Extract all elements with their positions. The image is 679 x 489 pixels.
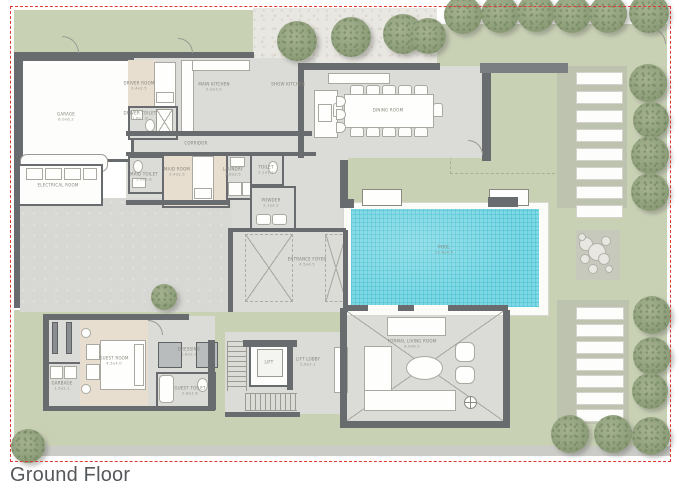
- stair-flight-lower: [245, 393, 297, 411]
- wall-dining-top: [298, 63, 440, 70]
- dining-chair: [366, 85, 380, 95]
- wall-foyer-right: [343, 230, 348, 312]
- tree: [151, 284, 177, 310]
- garden-bench-wall: [480, 63, 568, 73]
- dining-chair: [414, 85, 428, 95]
- wall-left-upper: [14, 52, 20, 165]
- wall-living-right: [503, 310, 510, 428]
- powder-sink-1: [256, 214, 271, 225]
- toilet-wc: [268, 161, 278, 174]
- garage-room: [20, 58, 134, 162]
- stepping-stone: [576, 72, 623, 85]
- wall-foyer-left: [228, 230, 233, 312]
- wall-living-bottom: [340, 421, 510, 428]
- electrical-unit-1: [26, 168, 43, 180]
- maid-bed-pillow: [194, 188, 212, 199]
- tree: [633, 102, 669, 138]
- garbage-bin-1: [50, 366, 63, 379]
- sun-lounger-1: [362, 189, 402, 206]
- stepping-stone: [576, 324, 624, 337]
- guest-tub: [159, 375, 174, 403]
- dining-chair: [398, 127, 412, 137]
- garbage-bin-2: [64, 366, 77, 379]
- wall-left-mid: [14, 160, 20, 308]
- stepping-stone: [576, 307, 624, 320]
- stepping-stone: [576, 91, 623, 104]
- guest-wc: [197, 378, 208, 392]
- living-top-opening-1: [368, 305, 398, 311]
- tree: [629, 64, 667, 102]
- lawn-top-left: [14, 10, 255, 54]
- stepping-stone: [576, 110, 623, 123]
- guest-bed-pillows: [134, 344, 144, 386]
- dining-chair: [398, 85, 412, 95]
- boulder: [588, 264, 598, 274]
- stair-flight-upper: [227, 341, 247, 391]
- foyer-skylight-left: [245, 234, 293, 302]
- wardrobe-1: [158, 342, 182, 368]
- electrical-unit-3: [64, 168, 81, 180]
- boulder: [601, 236, 611, 246]
- dining-chair: [433, 103, 443, 117]
- dining-chair: [382, 127, 396, 137]
- kitchen-counter-left: [181, 60, 194, 134]
- tree: [331, 17, 371, 57]
- tree: [551, 415, 589, 453]
- lift-car: [257, 349, 283, 377]
- dining-table: [344, 94, 434, 128]
- wall-lift-right: [287, 342, 293, 390]
- stepping-stone: [576, 186, 623, 199]
- wall-midrooms-bottom: [126, 200, 230, 205]
- wall-top-left-block: [14, 52, 254, 58]
- living-armchair-1: [455, 342, 475, 362]
- stepping-stone: [576, 358, 624, 371]
- dining-chair: [382, 85, 396, 95]
- dining-chair: [350, 85, 364, 95]
- wall-foyer-top: [228, 228, 346, 232]
- wall-corridor-top: [126, 131, 312, 136]
- wall-deck-stub-right: [488, 197, 518, 207]
- stepping-stone: [576, 341, 624, 354]
- toilet-room: [250, 154, 284, 186]
- stepping-stone: [576, 205, 623, 218]
- driver-sink: [131, 110, 143, 120]
- living-top-opening-2: [414, 305, 448, 311]
- driver-bed-pillow: [156, 92, 174, 103]
- tree: [633, 296, 671, 334]
- tree: [633, 337, 671, 375]
- maid-wc: [133, 160, 143, 173]
- dining-chair: [414, 127, 428, 137]
- tree: [632, 373, 668, 409]
- tree: [11, 429, 45, 463]
- living-sofa-l-horizontal: [364, 390, 456, 411]
- living-coffee-table: [406, 356, 443, 380]
- island-sink: [318, 104, 332, 122]
- guest-speaker-2: [81, 384, 91, 394]
- boulder: [580, 254, 590, 264]
- bike-2: [66, 322, 72, 354]
- powder-sink-2: [272, 214, 287, 225]
- dining-sideboard: [328, 73, 390, 84]
- living-armchair-2: [455, 366, 475, 384]
- dining-chair: [350, 127, 364, 137]
- wall-guest-left: [43, 314, 49, 410]
- tree: [631, 173, 669, 211]
- dining-chair: [366, 127, 380, 137]
- guest-speaker-1: [81, 328, 91, 338]
- tree: [632, 417, 670, 455]
- courtyard-terrace: [20, 198, 232, 312]
- boulder: [605, 265, 613, 273]
- living-sofa-top: [387, 317, 446, 336]
- wall-guest-bottom: [43, 406, 215, 411]
- maid-sink: [132, 178, 146, 188]
- boulder: [598, 253, 610, 265]
- kitchen-counter-top: [192, 60, 250, 71]
- pool-water: [351, 209, 539, 307]
- stepping-stone: [576, 129, 623, 142]
- tree: [594, 415, 632, 453]
- stepping-stone: [576, 167, 623, 180]
- wall-dining-right: [482, 63, 491, 161]
- floor-plan-sheet: Ground Floor GARAGE6.0x6.2DRIVER ROOM3.4…: [0, 0, 679, 489]
- laundry-sink: [230, 157, 245, 167]
- electrical-unit-4: [83, 168, 97, 180]
- tree: [410, 18, 446, 54]
- wall-corridor-bottom: [126, 152, 316, 156]
- tree: [277, 21, 317, 61]
- guest-armchair-2: [86, 364, 100, 380]
- washer-1: [228, 182, 242, 196]
- driver-room-floor: [128, 60, 156, 106]
- tree: [631, 136, 669, 174]
- wall-living-left: [340, 308, 347, 428]
- electrical-unit-2: [45, 168, 62, 180]
- wall-dining-left: [298, 66, 304, 158]
- stepping-stone: [576, 148, 623, 161]
- wall-stairs-bottom: [225, 412, 300, 417]
- stepping-stone: [576, 375, 624, 388]
- wall-guest-right: [208, 340, 215, 410]
- wall-deck-stub-left: [340, 199, 354, 208]
- bike-1: [52, 322, 58, 354]
- stepping-stone: [576, 392, 624, 405]
- wall-guest-top: [43, 314, 189, 320]
- boulder: [578, 233, 586, 241]
- living-floor-outlet: [464, 396, 477, 409]
- living-sofa-l-vertical: [364, 346, 392, 392]
- guest-armchair-1: [86, 344, 100, 360]
- page-title: Ground Floor: [10, 464, 130, 487]
